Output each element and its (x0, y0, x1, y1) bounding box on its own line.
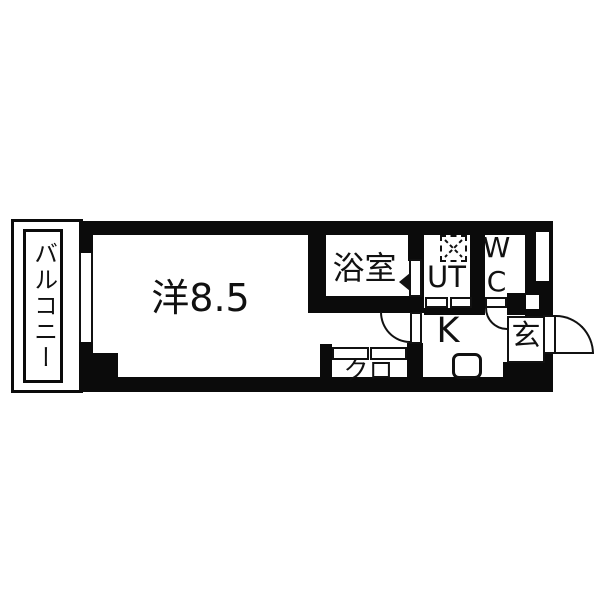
utility-door-panel-2 (450, 297, 472, 308)
front-door-arc-icon (556, 315, 594, 354)
wall-bottom (79, 377, 553, 392)
washing-machine-icon (440, 235, 467, 262)
wall-left-lower (79, 342, 93, 392)
wall-left-upper (79, 221, 93, 253)
room-door-arc-icon (380, 312, 410, 343)
wall-slot-upper (536, 232, 549, 281)
kitchen-sink-icon (452, 353, 482, 379)
balcony-window-icon (79, 253, 93, 342)
bathroom-door-leaf (409, 259, 422, 297)
utility-label: UT (423, 262, 470, 292)
kitchen-label: K (424, 313, 472, 350)
wall-entrance-step (503, 362, 545, 383)
balcony-label-box: バルコニー (23, 229, 63, 383)
utility-door-panel-1 (425, 297, 448, 308)
closet-label: クロ (330, 358, 407, 384)
balcony-label: バルコニー (30, 241, 55, 371)
wc-door-arc-icon (485, 308, 507, 330)
wc-label: WC (481, 231, 511, 297)
entrance-label: 玄 (507, 320, 545, 350)
bathroom-label: 浴室 (326, 252, 403, 286)
wall-closet-right (407, 343, 423, 385)
wall-slot-lower (526, 295, 539, 309)
main-room-label: 洋8.5 (93, 279, 308, 319)
wall-bath-bottom (308, 296, 424, 313)
room-door-leaf (410, 312, 422, 344)
floor-plan: バルコニー 洋8.5 浴室 UT (0, 0, 600, 600)
wall-left-pillar (92, 353, 118, 377)
